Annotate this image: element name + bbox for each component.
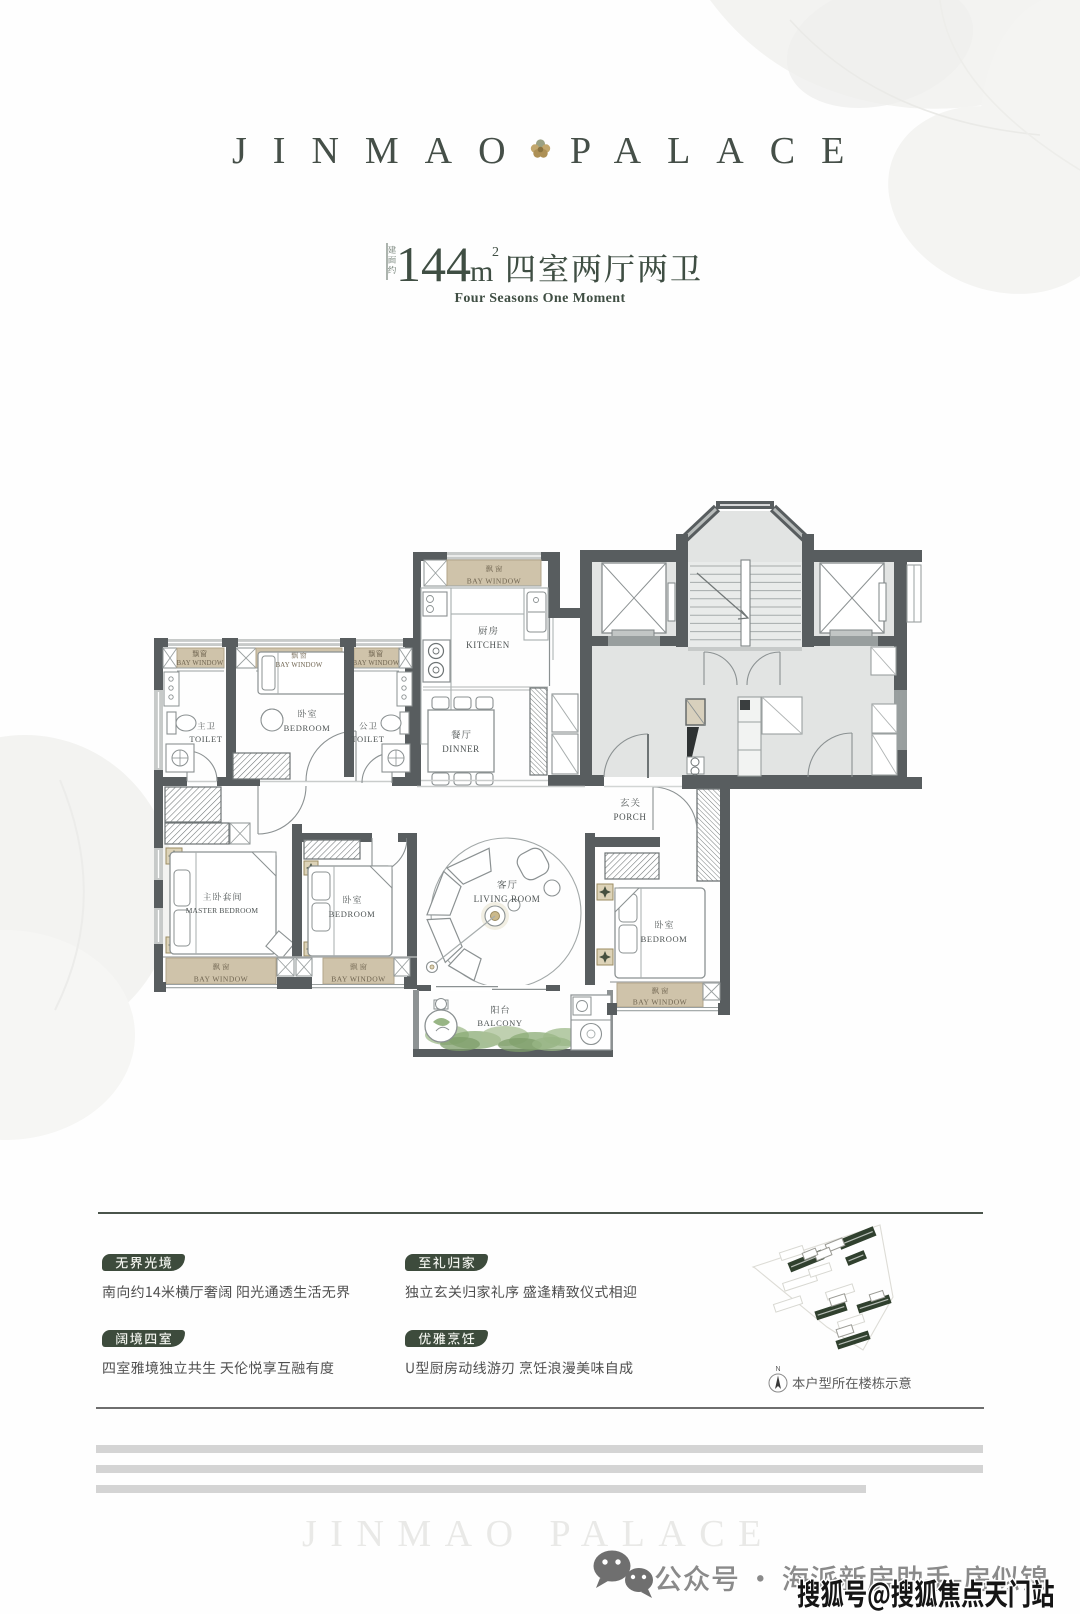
svg-text:N: N [775, 1366, 780, 1373]
